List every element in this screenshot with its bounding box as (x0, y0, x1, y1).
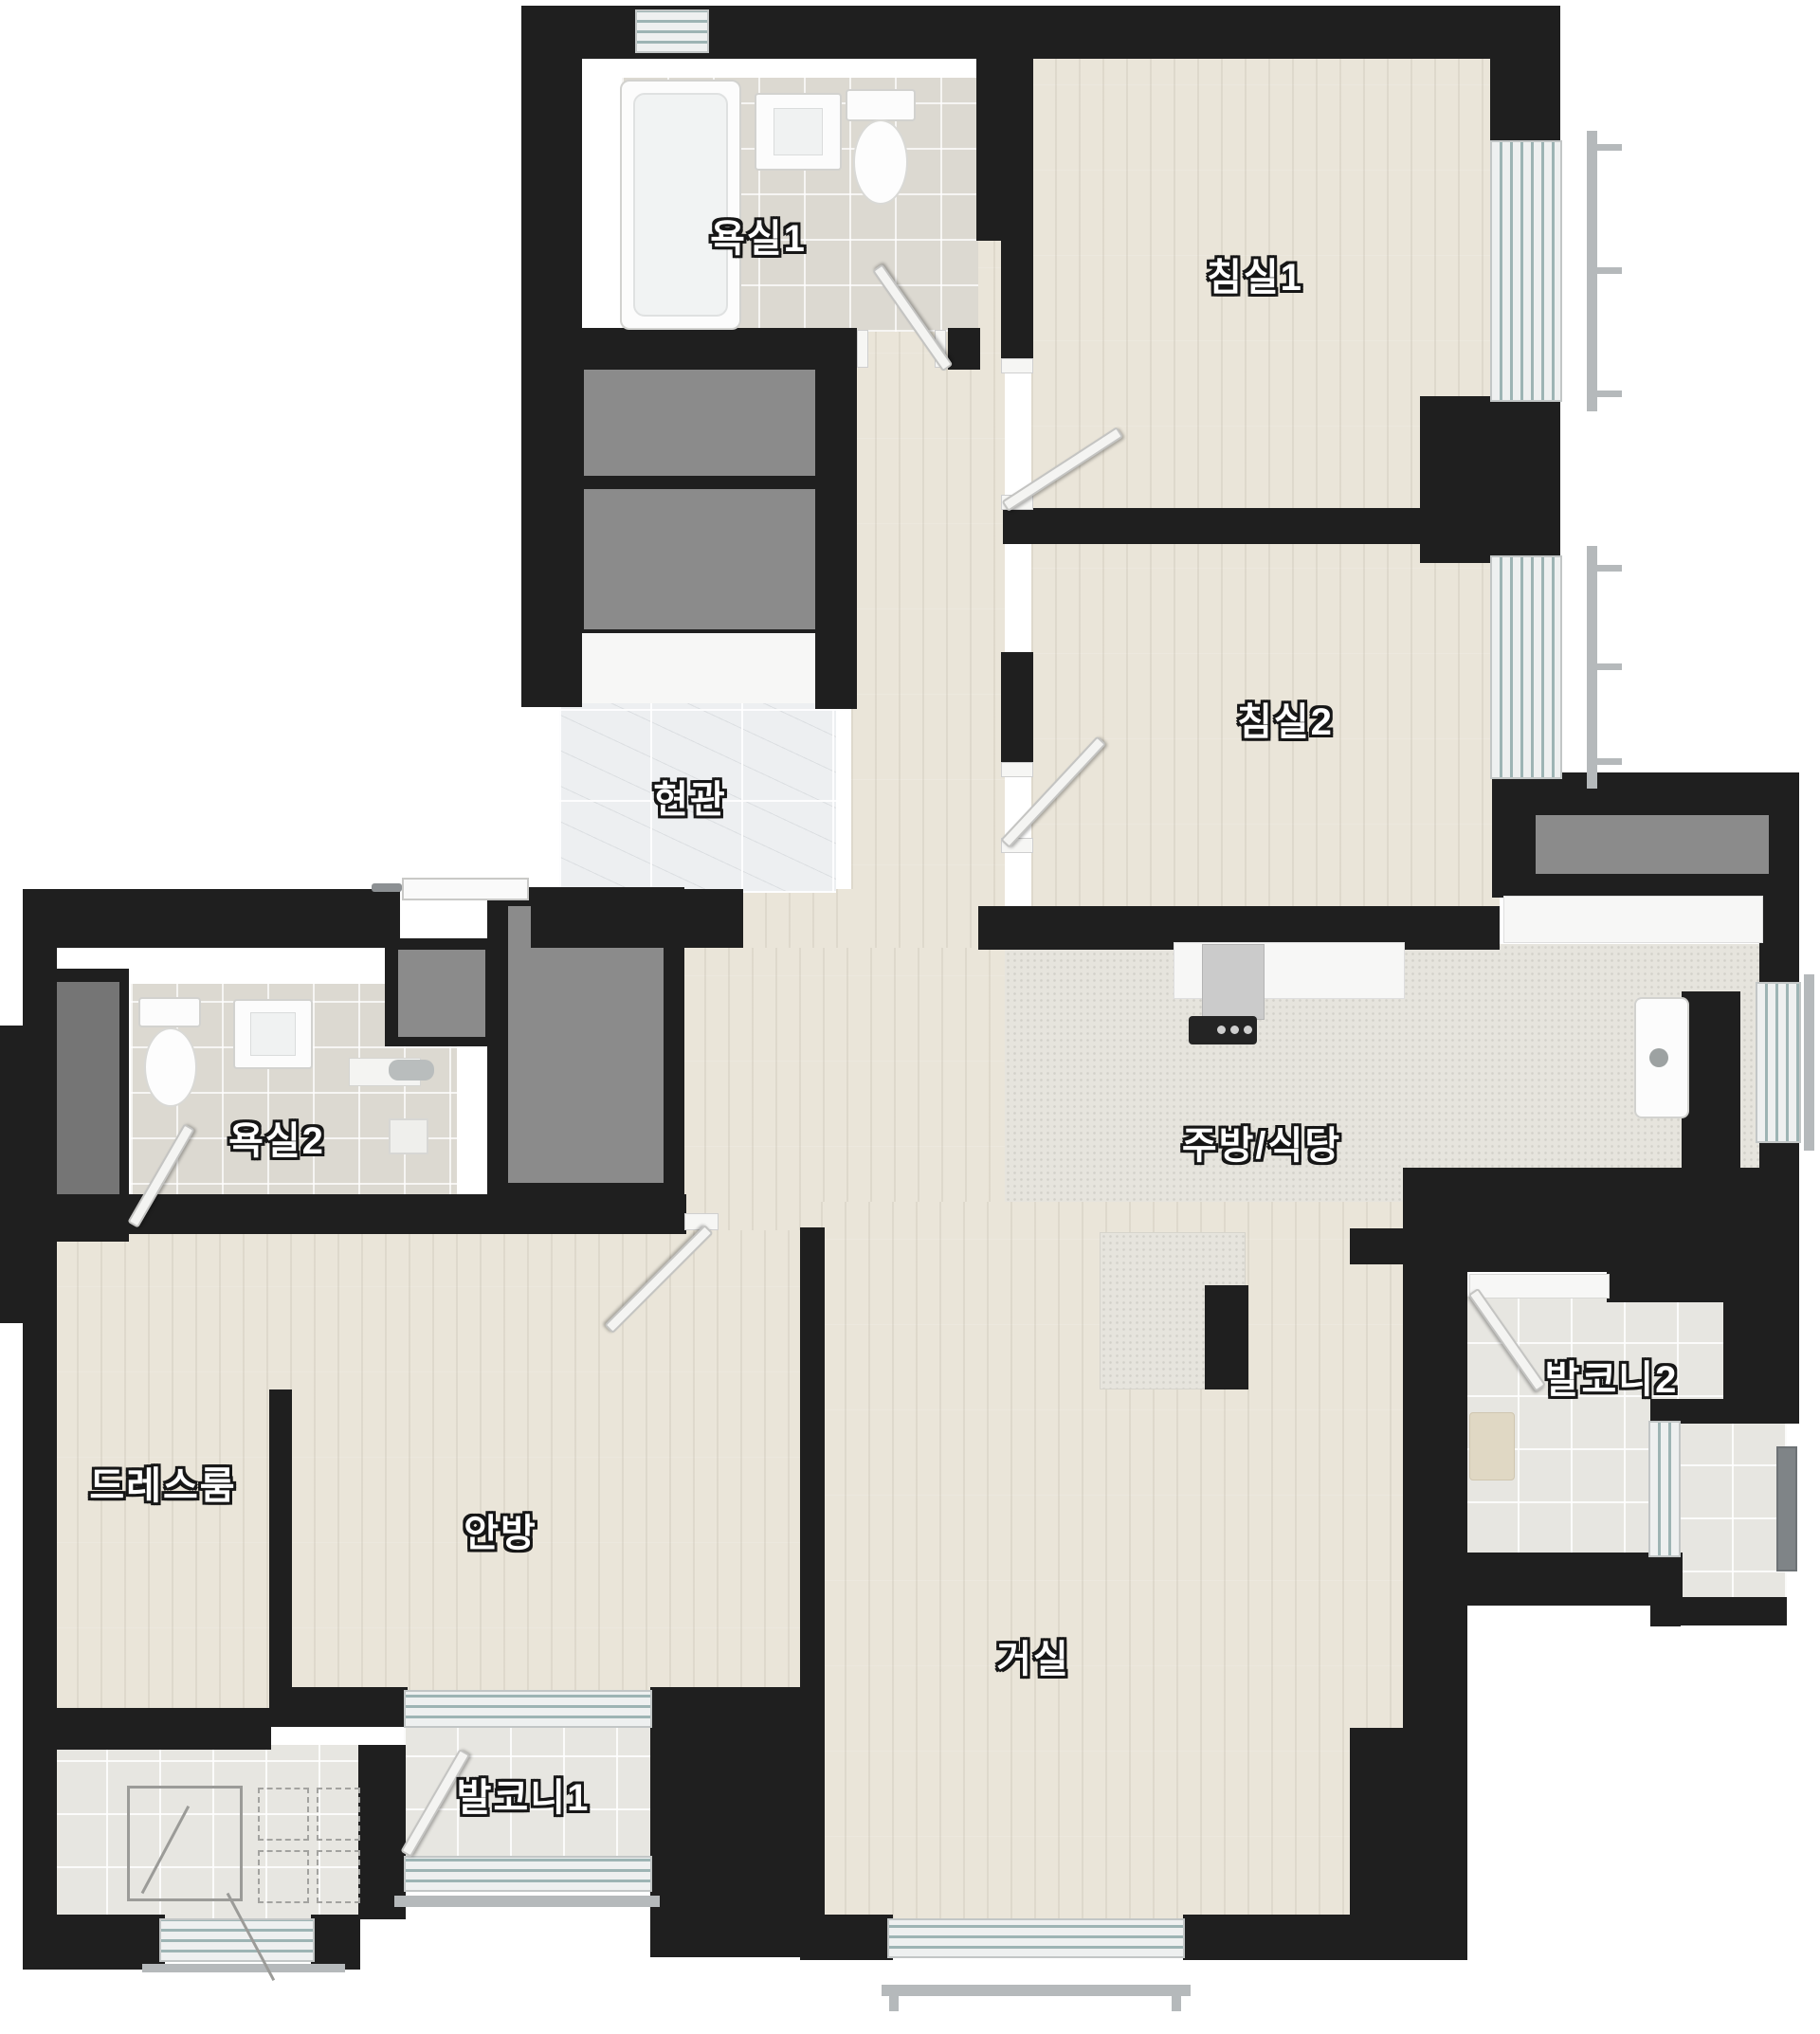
wall (815, 328, 857, 709)
balcony-railing (1597, 267, 1622, 274)
floor-hallway (681, 948, 1024, 1232)
room-label-bedroom1: 침실1 (1207, 246, 1303, 301)
sink-icon (250, 1012, 296, 1056)
kitchen-counter (1503, 896, 1763, 943)
room-label-balcony2: 발코니2 (1545, 1349, 1679, 1404)
balcony-mat (1469, 1412, 1515, 1480)
window (404, 1856, 652, 1892)
toilet-icon (144, 1027, 197, 1107)
wall (269, 1687, 408, 1727)
room-label-bathroom2: 욕실2 (228, 1110, 325, 1165)
shower-drain-icon (389, 1118, 428, 1154)
toilet-icon (853, 119, 908, 205)
appliance-outline-icon (258, 1788, 309, 1841)
ac-unit-bay (1536, 815, 1769, 874)
appliance-outline-icon (317, 1850, 360, 1903)
balcony-railing (1597, 758, 1622, 765)
floor-plan: 욕실1 침실1 현관 침실2 욕실2 주방/식당 드레스룸 안방 발코니2 거실… (0, 0, 1820, 2034)
floor-hallway (741, 889, 855, 951)
door-jamb (857, 330, 868, 368)
closet (49, 982, 119, 1228)
wall (650, 1745, 823, 1957)
wall (0, 1026, 25, 1323)
balcony-railing (1597, 565, 1622, 572)
wall (358, 1745, 406, 1919)
wall (23, 1708, 271, 1750)
wall (1003, 508, 1429, 544)
balcony-railing (1597, 390, 1622, 397)
balcony-railing (394, 1896, 660, 1907)
wall (800, 1227, 825, 1924)
room-label-dressroom: 드레스룸 (89, 1455, 236, 1510)
balcony-railing (1587, 131, 1597, 411)
wall (1490, 6, 1560, 150)
room-label-kitchen: 주방/식당 (1182, 1115, 1341, 1170)
room-label-entry: 현관 (653, 769, 727, 824)
wall (531, 889, 743, 948)
wall (1420, 396, 1560, 563)
shower-icon (389, 1060, 434, 1081)
faucet-icon (1649, 1048, 1668, 1067)
room-label-bathroom1: 욕실1 (710, 208, 807, 263)
wall (1465, 1553, 1683, 1606)
window (635, 9, 709, 53)
wall (521, 6, 582, 707)
balcony-railing (1804, 974, 1814, 1151)
wall (1205, 1285, 1248, 1389)
balcony-railing (1587, 546, 1597, 789)
sink-icon (773, 108, 823, 155)
closet (584, 370, 819, 476)
toilet-icon (846, 89, 916, 121)
wall (1403, 1202, 1467, 1730)
window (1648, 1421, 1681, 1557)
toilet-icon (138, 997, 201, 1027)
window (404, 1690, 652, 1728)
cooktop-burner-icon (1230, 1026, 1239, 1034)
window (887, 1918, 1185, 1958)
balcony-door-track (1469, 1274, 1610, 1298)
cooktop-burner-icon (1217, 1026, 1226, 1034)
balcony-railing (142, 1964, 345, 1972)
wall (23, 889, 400, 948)
balcony-railing (1597, 144, 1622, 151)
wall (1001, 652, 1033, 775)
balcony-railing (1597, 663, 1622, 670)
balcony-railing (889, 1996, 899, 2011)
wall (800, 1915, 893, 1960)
wall (269, 1389, 292, 1721)
room-label-bedroom2: 침실2 (1237, 691, 1334, 746)
closet (398, 950, 485, 1037)
closet (584, 489, 819, 629)
window (1490, 140, 1562, 402)
wall (1350, 1228, 1403, 1264)
entry-shoe-cabinet (580, 629, 836, 703)
wall (650, 1687, 823, 1750)
window (1490, 555, 1562, 779)
wall (1001, 235, 1033, 372)
floor-balcony2-lower (1679, 1421, 1787, 1625)
room-label-balcony1: 발코니1 (457, 1767, 591, 1822)
wall (976, 6, 1033, 241)
balcony-railing (882, 1985, 1191, 1996)
kitchen-tall-cabinet (1682, 991, 1740, 1171)
wall (311, 1915, 360, 1970)
door-jamb (1001, 762, 1033, 777)
cooktop-burner-icon (1244, 1026, 1252, 1034)
door-handle-icon (372, 883, 402, 892)
room-label-living: 거실 (996, 1628, 1070, 1683)
window (1756, 982, 1801, 1143)
balcony-railing (1172, 1996, 1181, 2011)
front-door (402, 878, 529, 900)
range-hood-icon (1202, 944, 1265, 1020)
appliance-outline-icon (258, 1850, 309, 1903)
wall (23, 889, 57, 1970)
bathtub-icon (633, 93, 728, 317)
door-jamb (1001, 358, 1033, 373)
wall (948, 328, 980, 370)
wall (1350, 1728, 1467, 1957)
window (1776, 1446, 1797, 1571)
appliance-outline-icon (317, 1788, 360, 1841)
wall (23, 1915, 165, 1970)
wall (1679, 1597, 1787, 1625)
room-label-master: 안방 (464, 1502, 537, 1557)
window (159, 1918, 315, 1962)
